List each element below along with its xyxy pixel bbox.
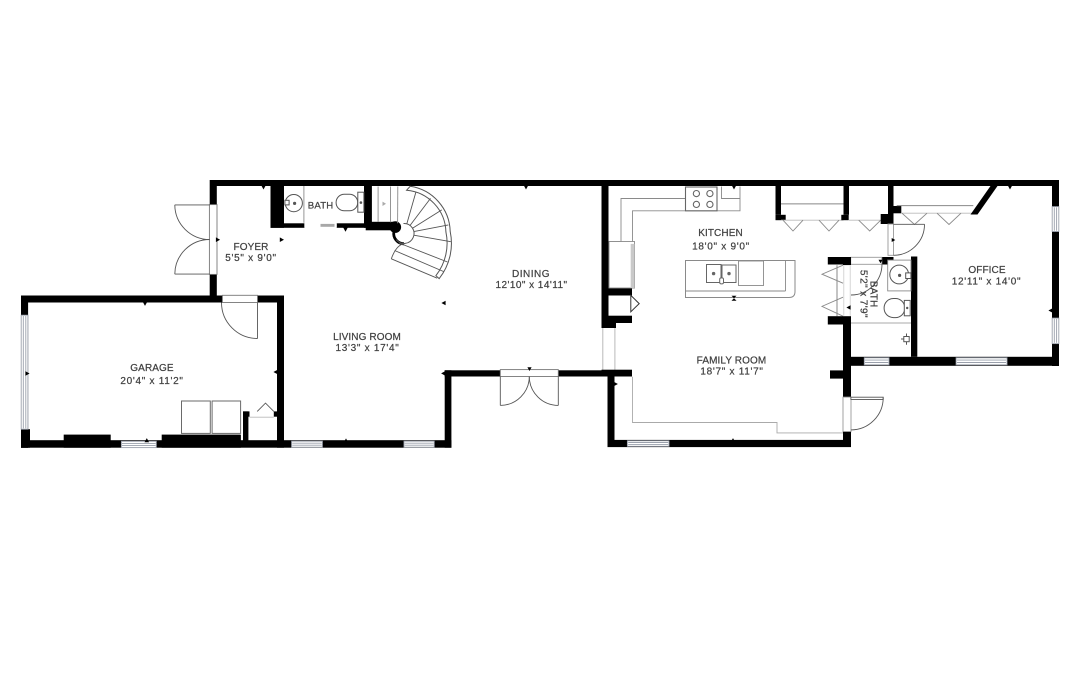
svg-text:12'10" x 14'11": 12'10" x 14'11"	[496, 280, 568, 291]
svg-text:12'11" x 14'0": 12'11" x 14'0"	[952, 277, 1021, 288]
svg-text:OFFICE: OFFICE	[968, 265, 1005, 276]
svg-text:13'3" x 17'4": 13'3" x 17'4"	[336, 343, 400, 354]
svg-text:5'2" x 7'9": 5'2" x 7'9"	[857, 270, 868, 318]
svg-text:DINING: DINING	[512, 269, 550, 280]
svg-text:BATH: BATH	[308, 200, 334, 211]
svg-text:18'7" x 11'7": 18'7" x 11'7"	[700, 367, 763, 378]
svg-text:KITCHEN: KITCHEN	[698, 228, 743, 239]
svg-text:5'5" x 9'0": 5'5" x 9'0"	[225, 253, 276, 264]
svg-text:GARAGE: GARAGE	[130, 363, 174, 374]
svg-text:18'0" x 9'0": 18'0" x 9'0"	[692, 241, 750, 252]
svg-text:20'4" x 11'2": 20'4" x 11'2"	[120, 376, 183, 387]
svg-text:FAMILY ROOM: FAMILY ROOM	[697, 355, 767, 366]
svg-text:FOYER: FOYER	[234, 242, 269, 253]
svg-text:LIVING ROOM: LIVING ROOM	[333, 332, 401, 343]
